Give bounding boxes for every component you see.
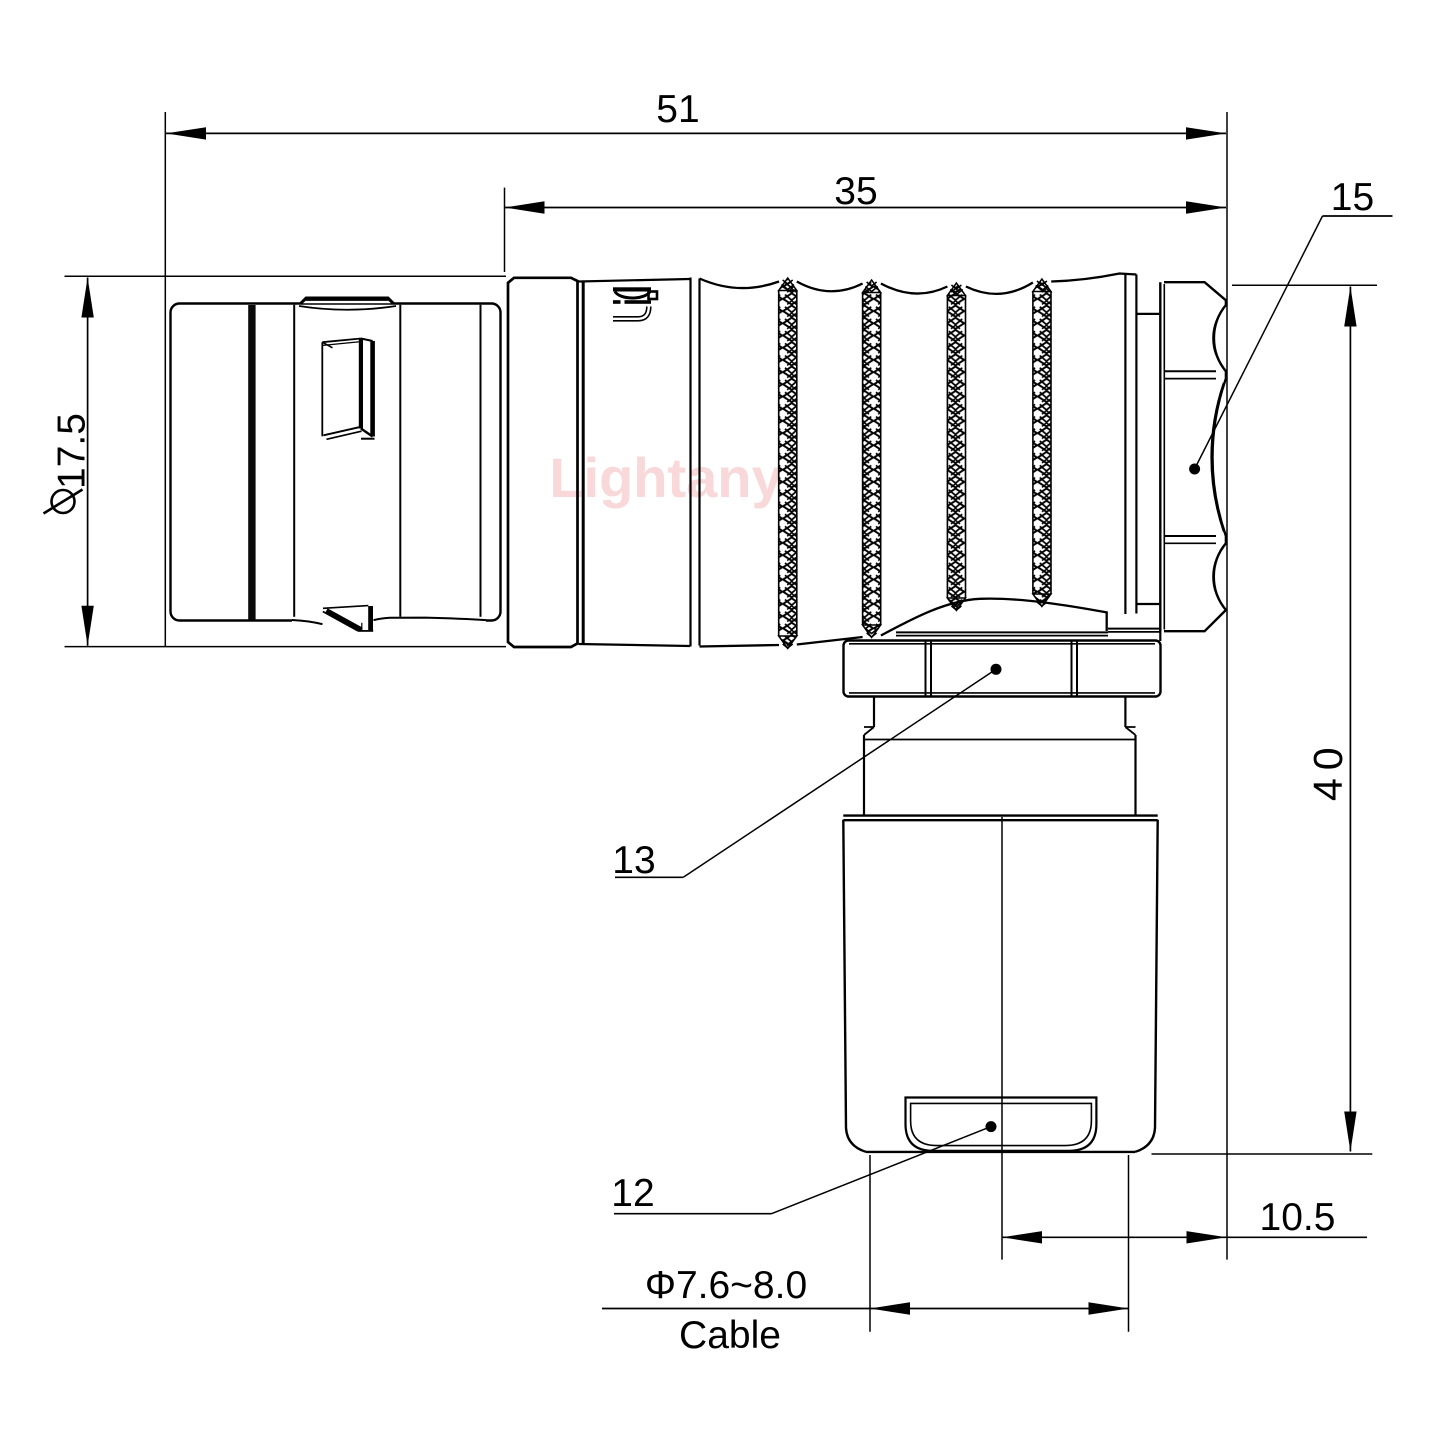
- svg-text:Cable: Cable: [679, 1314, 781, 1357]
- svg-text:12: 12: [611, 1172, 654, 1215]
- svg-text:17.5: 17.5: [51, 413, 94, 489]
- svg-text:40: 40: [1305, 739, 1351, 801]
- svg-text:51: 51: [656, 88, 699, 131]
- svg-text:35: 35: [834, 170, 877, 213]
- svg-text:15: 15: [1331, 176, 1374, 219]
- svg-text:13: 13: [612, 839, 655, 882]
- svg-text:Φ7.6~8.0: Φ7.6~8.0: [645, 1264, 807, 1307]
- svg-text:10.5: 10.5: [1260, 1196, 1336, 1239]
